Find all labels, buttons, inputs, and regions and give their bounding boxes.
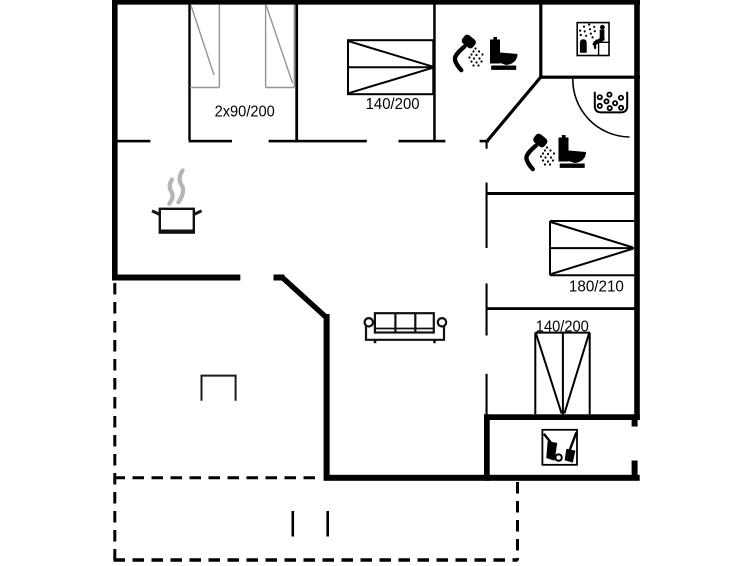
- svg-text:2x90/200: 2x90/200: [215, 103, 275, 120]
- svg-text:140/200: 140/200: [366, 96, 420, 113]
- svg-text:180/210: 180/210: [569, 279, 624, 296]
